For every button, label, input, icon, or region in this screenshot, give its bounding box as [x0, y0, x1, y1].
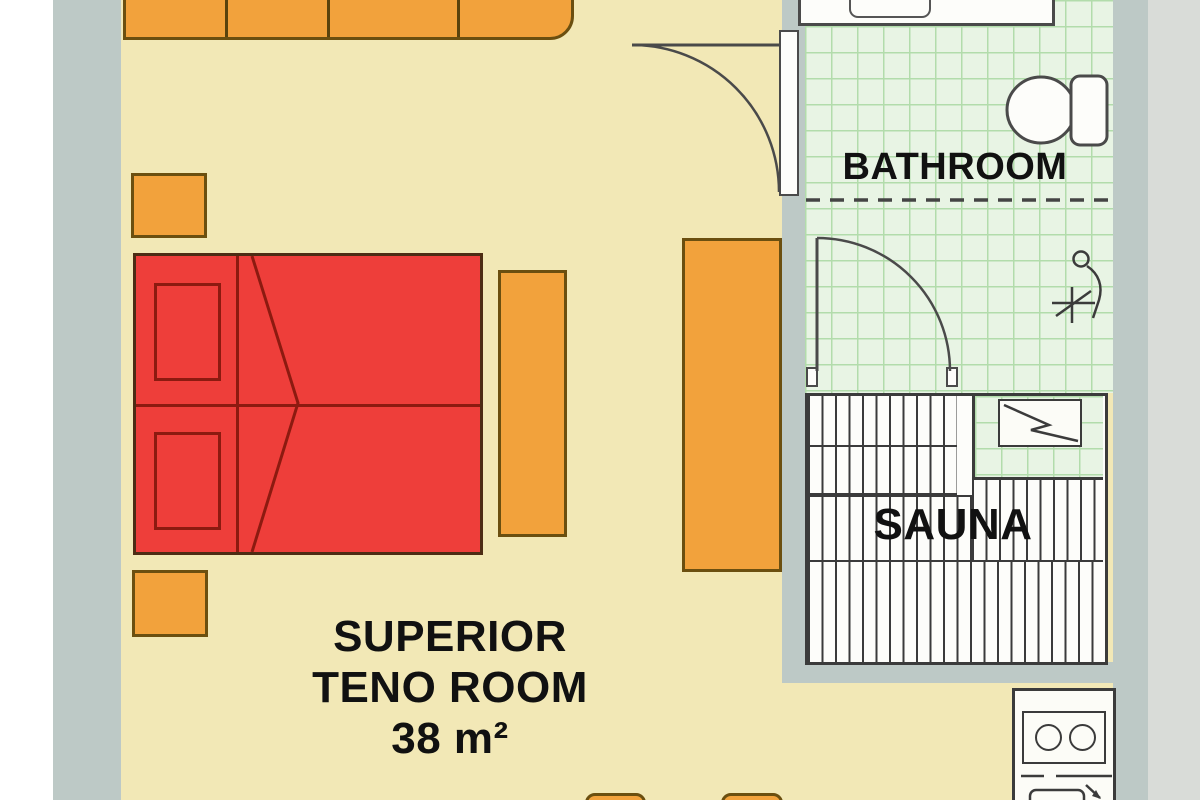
sauna-bench-bottom	[808, 560, 1103, 662]
stove-burner-right	[1069, 724, 1096, 751]
room-area-label: 38 m²	[250, 713, 650, 764]
sauna-heater-icon	[998, 399, 1082, 447]
sauna-bench-upper-1	[808, 396, 957, 447]
left-wall	[53, 0, 121, 800]
pillow-bottom	[154, 432, 221, 530]
sofa-divider	[225, 0, 228, 37]
side-table-bottom	[132, 570, 208, 637]
bathroom-label: BATHROOM	[805, 147, 1105, 187]
sofa-divider	[327, 0, 330, 37]
sauna-bench-upper-2	[808, 447, 957, 495]
bed-center-divider	[136, 404, 480, 407]
bathroom-floor	[805, 0, 1113, 393]
room-title: SUPERIOR TENO ROOM 38 m²	[250, 611, 650, 764]
stove-burner-left	[1035, 724, 1062, 751]
sofa-divider	[457, 0, 460, 37]
stool-right	[721, 793, 783, 800]
wardrobe	[682, 238, 782, 572]
sauna-bottom-wall	[782, 662, 1148, 683]
floor-plan: BATHROOM SAUNA SUPERIOR TENO ROOM 38 m²	[0, 0, 1200, 800]
sauna-label: SAUNA	[803, 502, 1103, 548]
bedside-bench	[498, 270, 567, 537]
pillow-top	[154, 283, 221, 381]
bathroom-door-jamb-right	[946, 367, 958, 387]
stool-left	[585, 793, 646, 800]
room-title-line2: TENO ROOM	[250, 662, 650, 713]
room-title-line1: SUPERIOR	[250, 611, 650, 662]
double-bed	[133, 253, 483, 555]
left-outer-margin	[0, 0, 53, 800]
right-outer-margin	[1148, 0, 1200, 800]
side-table-top	[131, 173, 207, 238]
sofa	[123, 0, 574, 40]
bathroom-door-jamb-left	[806, 367, 818, 387]
right-wall	[1113, 0, 1148, 800]
sink-basin-icon	[849, 0, 931, 18]
room-door-jamb	[779, 30, 799, 196]
